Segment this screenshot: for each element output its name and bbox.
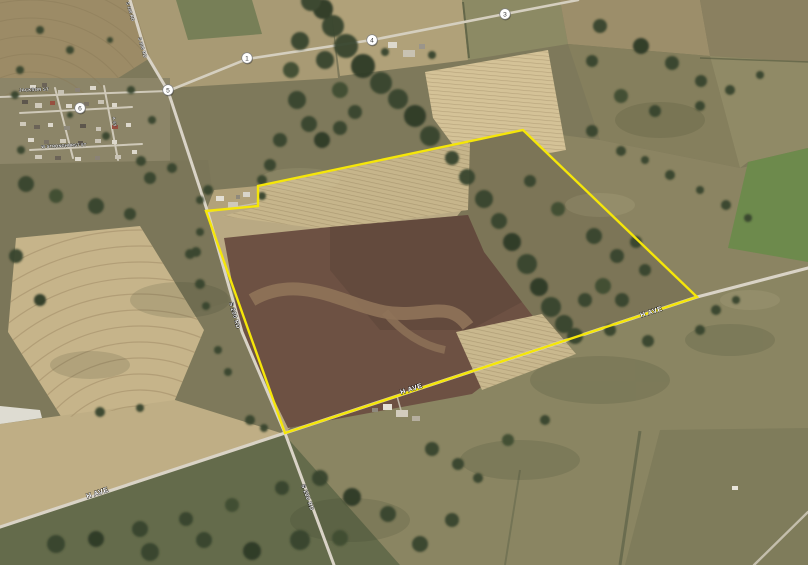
map-screenshot: H AVEH AVEH AVES 200 RDS 200 RDS 200 RDS… (0, 0, 808, 565)
road-label: JACKSON ST (19, 86, 49, 92)
marker-number: 1 (245, 55, 249, 62)
marker-number: 5 (166, 87, 170, 94)
marker-number: 4 (370, 37, 374, 44)
marker-number: 3 (503, 11, 507, 18)
farmstead-right-speck (732, 486, 738, 490)
satellite-map-canvas[interactable]: H AVEH AVEH AVES 200 RDS 200 RDS 200 RDS… (0, 0, 808, 565)
terrain-fields (0, 0, 808, 565)
marker-number: 6 (78, 105, 82, 112)
